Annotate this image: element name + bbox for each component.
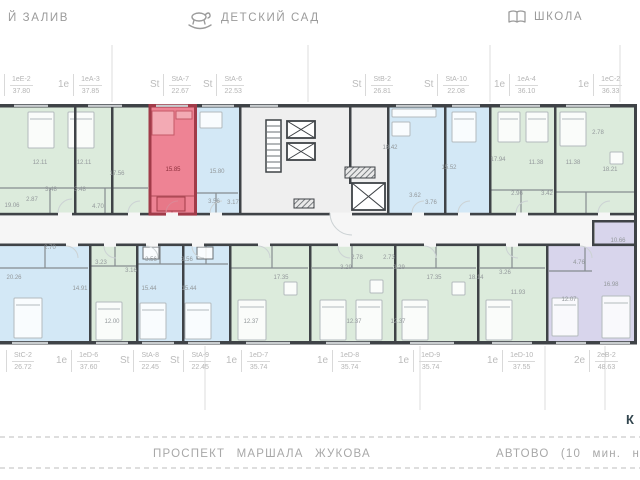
unit-label-1еС-2[interactable]: 1е1еС-236.33 xyxy=(578,74,625,96)
unit-type: St xyxy=(170,356,179,366)
unit-type: 2е xyxy=(574,356,585,366)
room-area-label: 3.16 xyxy=(125,268,137,274)
unit-area: 36.10 xyxy=(518,86,536,95)
room-area-label: 4.76 xyxy=(573,260,585,266)
room-area-label: 15.44 xyxy=(181,286,196,292)
unit-type: 1е xyxy=(487,356,498,366)
unit-area: 48.63 xyxy=(598,362,616,371)
room-area-label: 3.76 xyxy=(425,200,437,206)
room-area-label: 3.62 xyxy=(409,193,421,199)
unit-label-1еА-4[interactable]: 1е1еА-436.10 xyxy=(494,74,541,96)
corridor xyxy=(0,215,637,245)
room-area-label: 17.35 xyxy=(426,275,441,281)
unit-area: 37.55 xyxy=(513,362,531,371)
room-area-label: 2.96 xyxy=(511,191,523,197)
unit-code: StB-2 xyxy=(371,75,393,86)
unit-code: 1еС-2 xyxy=(599,75,622,86)
room-area-label: 3.48 xyxy=(74,187,86,193)
room-area-label: 15.44 xyxy=(141,286,156,292)
room-area-label: 3.56 xyxy=(145,257,157,263)
unit-type: 1е xyxy=(317,356,328,366)
unit-type: 1е xyxy=(494,80,505,90)
room-area-label: 3.56 xyxy=(181,257,193,263)
room-area-label: 2.78 xyxy=(592,130,604,136)
unit-code: StC-2 xyxy=(12,351,34,362)
unit-area: 22.45 xyxy=(141,362,159,371)
room-area-label: 18.42 xyxy=(382,145,397,151)
unit-area: 26.72 xyxy=(14,362,32,371)
metro-name: АВТОВО (10 мин. на трансп xyxy=(496,448,640,460)
unit-label-StC-2[interactable]: StC-226.72 xyxy=(6,350,37,372)
unit-area: 22.53 xyxy=(224,86,242,95)
staircase-icon xyxy=(266,120,281,172)
unit-label-StB-2[interactable]: StStB-226.81 xyxy=(352,74,396,96)
unit-code: StA-8 xyxy=(139,351,161,362)
unit-label-1еЕ-2[interactable]: 1еЕ-237.80 xyxy=(4,74,36,96)
room-area-label: 17.94 xyxy=(490,157,505,163)
room-area-label: 3.42 xyxy=(541,191,553,197)
unit-area: 35.74 xyxy=(422,362,440,371)
unit-label-StA-7[interactable]: StStA-722.67 xyxy=(150,74,194,96)
unit-code: 1еD-8 xyxy=(338,351,361,362)
floorplan-svg xyxy=(0,0,640,480)
room-area-label: 17.35 xyxy=(273,275,288,281)
room-area-label: 3.48 xyxy=(45,187,57,193)
unit-label-1еD-10[interactable]: 1е1еD-1037.55 xyxy=(487,350,538,372)
unit-code: 1еD-6 xyxy=(77,351,100,362)
room-area-label: 15.80 xyxy=(209,169,224,175)
corner-mark: К xyxy=(626,412,634,427)
unit-label-1еD-6[interactable]: 1е1еD-637.60 xyxy=(56,350,103,372)
room-area-label: 20.26 xyxy=(6,275,21,281)
unit-area: 37.60 xyxy=(80,362,98,371)
unit-code: 1еD-9 xyxy=(419,351,442,362)
unit-type: 1е xyxy=(226,356,237,366)
room-area-label: 15.52 xyxy=(441,165,456,171)
unit-label-1еD-7[interactable]: 1е1еD-735.74 xyxy=(226,350,273,372)
unit-label-StA-8[interactable]: StStA-822.45 xyxy=(120,350,164,372)
room-area-label: 16.98 xyxy=(603,282,618,288)
room-area-label: 12.37 xyxy=(243,319,258,325)
unit-code: StA-7 xyxy=(169,75,191,86)
unit-area: 35.74 xyxy=(341,362,359,371)
room-area-label: 3.17 xyxy=(227,200,239,206)
unit-code: 1еА-3 xyxy=(79,75,102,86)
room-area-label: 2.73 xyxy=(383,255,395,261)
unit-label-StA-6[interactable]: StStA-622.53 xyxy=(203,74,247,96)
unit-code: StA-9 xyxy=(189,351,211,362)
unit-label-StA-10[interactable]: StStA-1022.08 xyxy=(424,74,472,96)
unit-area: 26.81 xyxy=(373,86,391,95)
room-area-label: 19.06 xyxy=(4,203,19,209)
unit-label-2еВ-2[interactable]: 2е2еВ-248.63 xyxy=(574,350,621,372)
unit-code: 1еЕ-2 xyxy=(10,75,33,86)
unit-area: 37.85 xyxy=(82,86,100,95)
room-area-label: 12.37 xyxy=(346,319,361,325)
room-area-label: 2.70 xyxy=(44,245,56,251)
unit-code: StA-6 xyxy=(222,75,244,86)
unit-type: 1е xyxy=(58,80,69,90)
room-area-label: 12.07 xyxy=(561,297,576,303)
room-area-label: 12.11 xyxy=(77,160,92,166)
unit-type: St xyxy=(120,356,129,366)
unit-code: 2еВ-2 xyxy=(595,351,618,362)
room-area-label: 10.66 xyxy=(610,238,625,244)
room-area-label: 3.23 xyxy=(95,260,107,266)
room-area-label: 11.38 xyxy=(566,160,581,166)
unit-type: St xyxy=(203,80,212,90)
room-area-label: 2.78 xyxy=(351,255,363,261)
room-area-label: 11.38 xyxy=(529,160,544,166)
room-area-label: 18.14 xyxy=(468,275,483,281)
unit-code: 1еА-4 xyxy=(515,75,538,86)
unit-label-1еD-8[interactable]: 1е1еD-835.74 xyxy=(317,350,364,372)
unit-type: 1е xyxy=(398,356,409,366)
room-area-label: 3.29 xyxy=(340,265,352,271)
room-area-label: 3.26 xyxy=(499,270,511,276)
room-area-label: 17.56 xyxy=(109,171,124,177)
unit-area: 22.08 xyxy=(447,86,465,95)
unit-type: St xyxy=(150,80,159,90)
unit-code: 1еD-10 xyxy=(508,351,535,362)
room-area-label: 14.91 xyxy=(72,286,87,292)
unit-type: St xyxy=(352,80,361,90)
floorplan-screen: Й ЗАЛИВ ДЕТСКИЙ САД ШКОЛА xyxy=(0,0,640,480)
room-area-label: 15.85 xyxy=(165,167,180,173)
unit-area: 36.33 xyxy=(602,86,620,95)
room-area-label: 2.87 xyxy=(26,197,38,203)
unit-area: 22.67 xyxy=(171,86,189,95)
room-area-label: 11.93 xyxy=(511,290,526,296)
unit-code: 1еD-7 xyxy=(247,351,270,362)
unit-type: 1е xyxy=(56,356,67,366)
unit-type: St xyxy=(424,80,433,90)
unit-area: 35.74 xyxy=(250,362,268,371)
room-area-label: 18.21 xyxy=(602,167,617,173)
unit-code: StA-10 xyxy=(443,75,468,86)
unit-area: 37.80 xyxy=(13,86,31,95)
room-area-label: 4.70 xyxy=(92,204,104,210)
room-area-label: 3.56 xyxy=(208,199,220,205)
street-name: ПРОСПЕКТ МАРШАЛА ЖУКОВА xyxy=(153,448,371,460)
unit-label-StA-9[interactable]: StStA-922.45 xyxy=(170,350,214,372)
unit-area: 22.45 xyxy=(191,362,209,371)
room-area-label: 12.00 xyxy=(104,319,119,325)
unit-type: 1е xyxy=(578,80,589,90)
unit-label-1еD-9[interactable]: 1е1еD-935.74 xyxy=(398,350,445,372)
room-area-label: 12.37 xyxy=(390,319,405,325)
room-area-label: 12.11 xyxy=(33,160,48,166)
room-area-label: 3.29 xyxy=(393,265,405,271)
unit-label-1еА-3[interactable]: 1е1еА-337.85 xyxy=(58,74,105,96)
